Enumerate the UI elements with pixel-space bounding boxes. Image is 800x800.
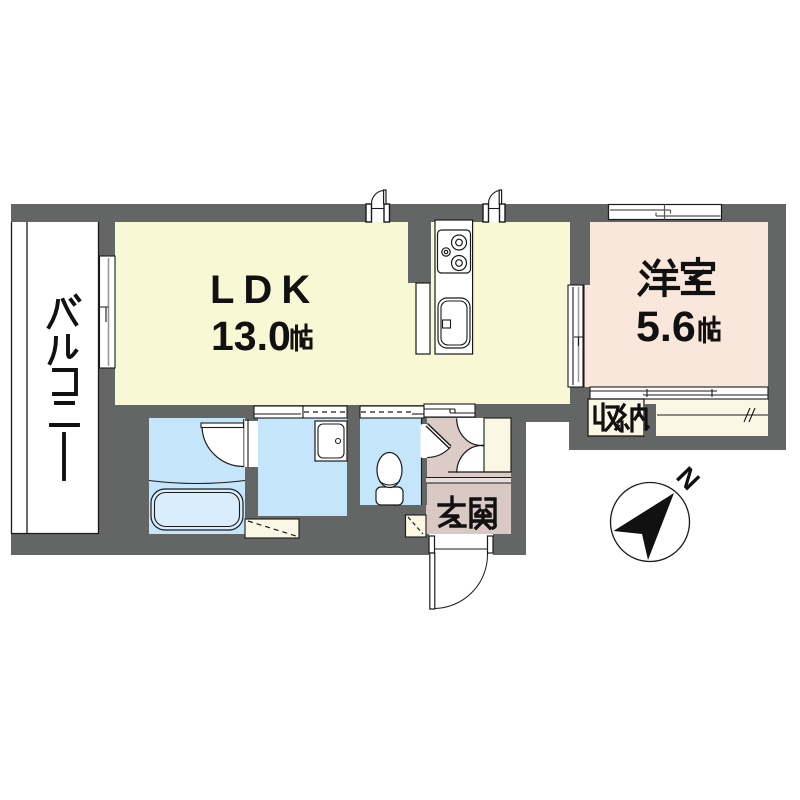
- svg-text:LDK: LDK: [210, 268, 319, 312]
- svg-text:5.6: 5.6: [636, 303, 696, 351]
- svg-text:13.0: 13.0: [211, 313, 291, 359]
